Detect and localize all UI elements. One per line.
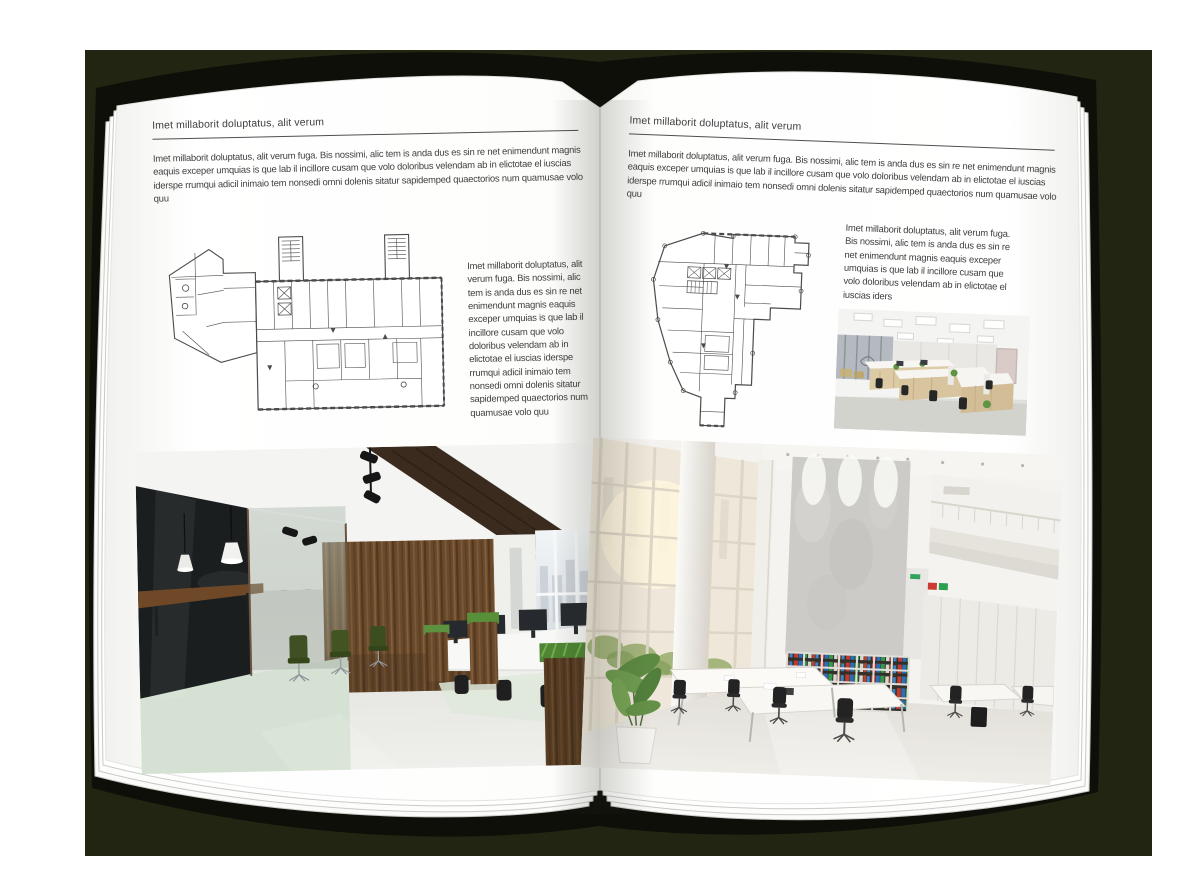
left-side-text: Imet millaborit doluptatus, alit verum f… — [467, 257, 596, 420]
right-kicker: Imet millaborit doluptatus, alit verum — [629, 114, 801, 133]
right-intro: Imet millaborit doluptatus, alit verum f… — [626, 146, 1070, 216]
brochure-mockup: Imet millaborit doluptatus, alit verum I… — [0, 0, 1200, 891]
concrete-wall — [785, 453, 911, 659]
photo-atrium-office — [581, 437, 1063, 785]
left-kicker-rule — [152, 130, 578, 140]
right-page-content: Imet millaborit doluptatus, alit verum I… — [593, 108, 1090, 836]
floor-plan-left — [160, 221, 456, 423]
floor-plan-right — [638, 221, 846, 435]
left-intro: Imet millaborit doluptatus, alit verum f… — [153, 142, 596, 205]
photo-workstations-small — [834, 309, 1030, 436]
left-kicker: Imet millaborit doluptatus, alit verum — [152, 116, 324, 132]
left-page-content: Imet millaborit doluptatus, alit verum I… — [140, 107, 607, 816]
photo-loft-office — [135, 443, 602, 775]
right-side-text: Imet millaborit doluptatus, alit verum f… — [843, 221, 1024, 308]
